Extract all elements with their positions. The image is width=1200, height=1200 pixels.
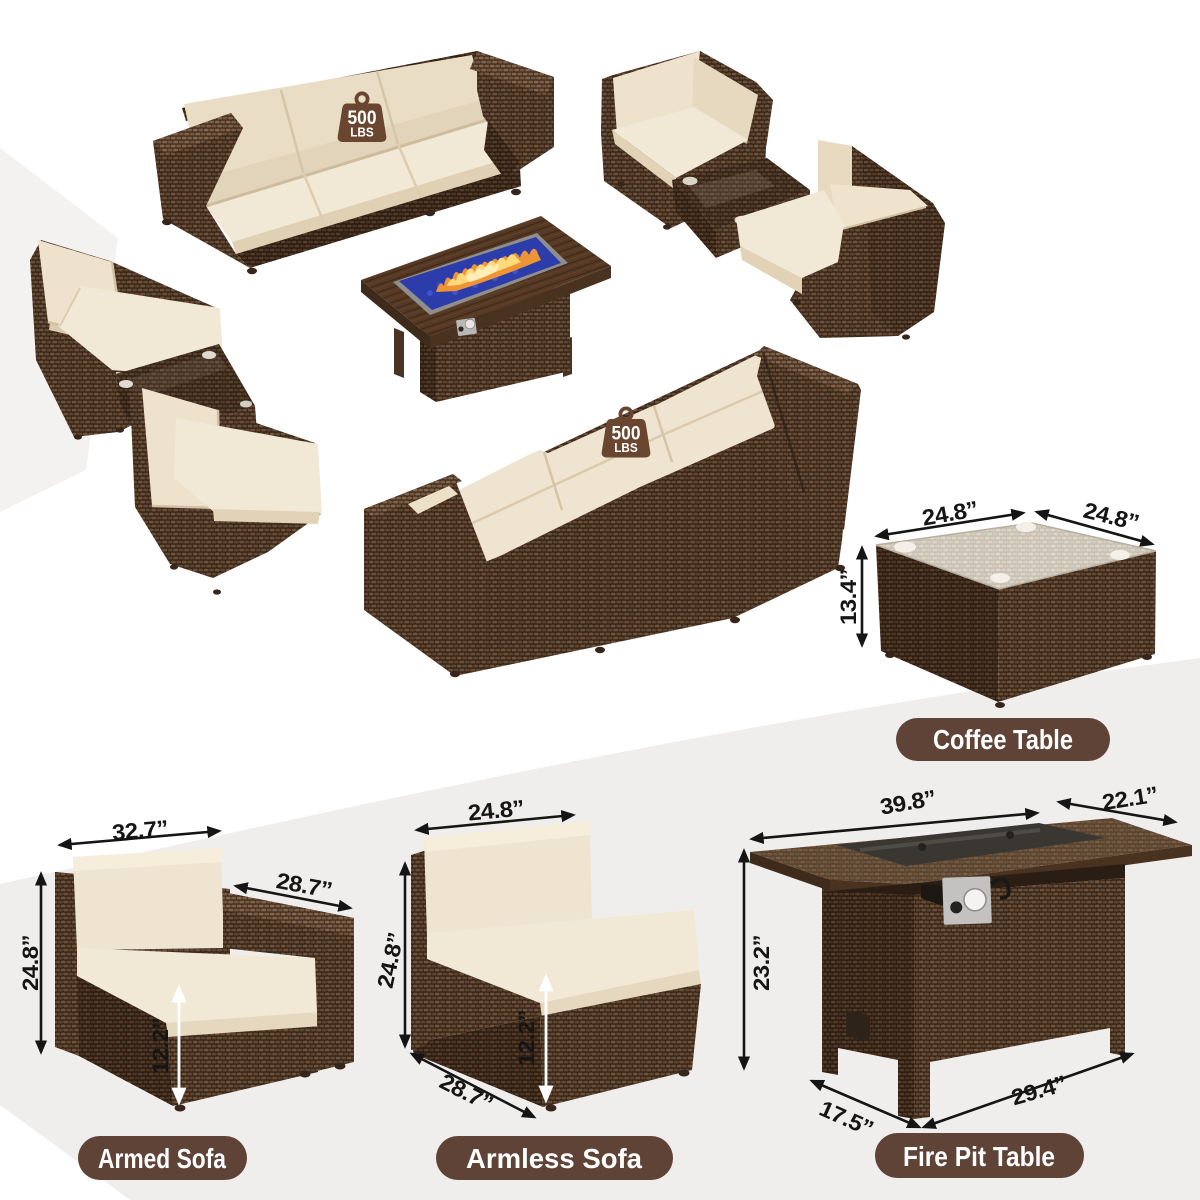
svg-text:Coffee Table: Coffee Table [933,724,1073,755]
svg-text:32.7”: 32.7” [111,816,169,846]
svg-text:Fire Pit Table: Fire Pit Table [903,1141,1055,1172]
svg-text:Armless Sofa: Armless Sofa [466,1143,642,1174]
svg-text:LBS: LBS [350,126,374,140]
svg-text:24.8”: 24.8” [467,795,525,825]
svg-text:Armed Sofa: Armed Sofa [98,1143,226,1174]
svg-text:23.2”: 23.2” [749,935,774,991]
svg-text:13.4”: 13.4” [836,569,861,625]
svg-text:24.8”: 24.8” [18,935,43,991]
svg-text:LBS: LBS [614,441,638,455]
svg-text:12.2”: 12.2” [514,1010,539,1066]
svg-text:12.2”: 12.2” [148,1018,173,1074]
